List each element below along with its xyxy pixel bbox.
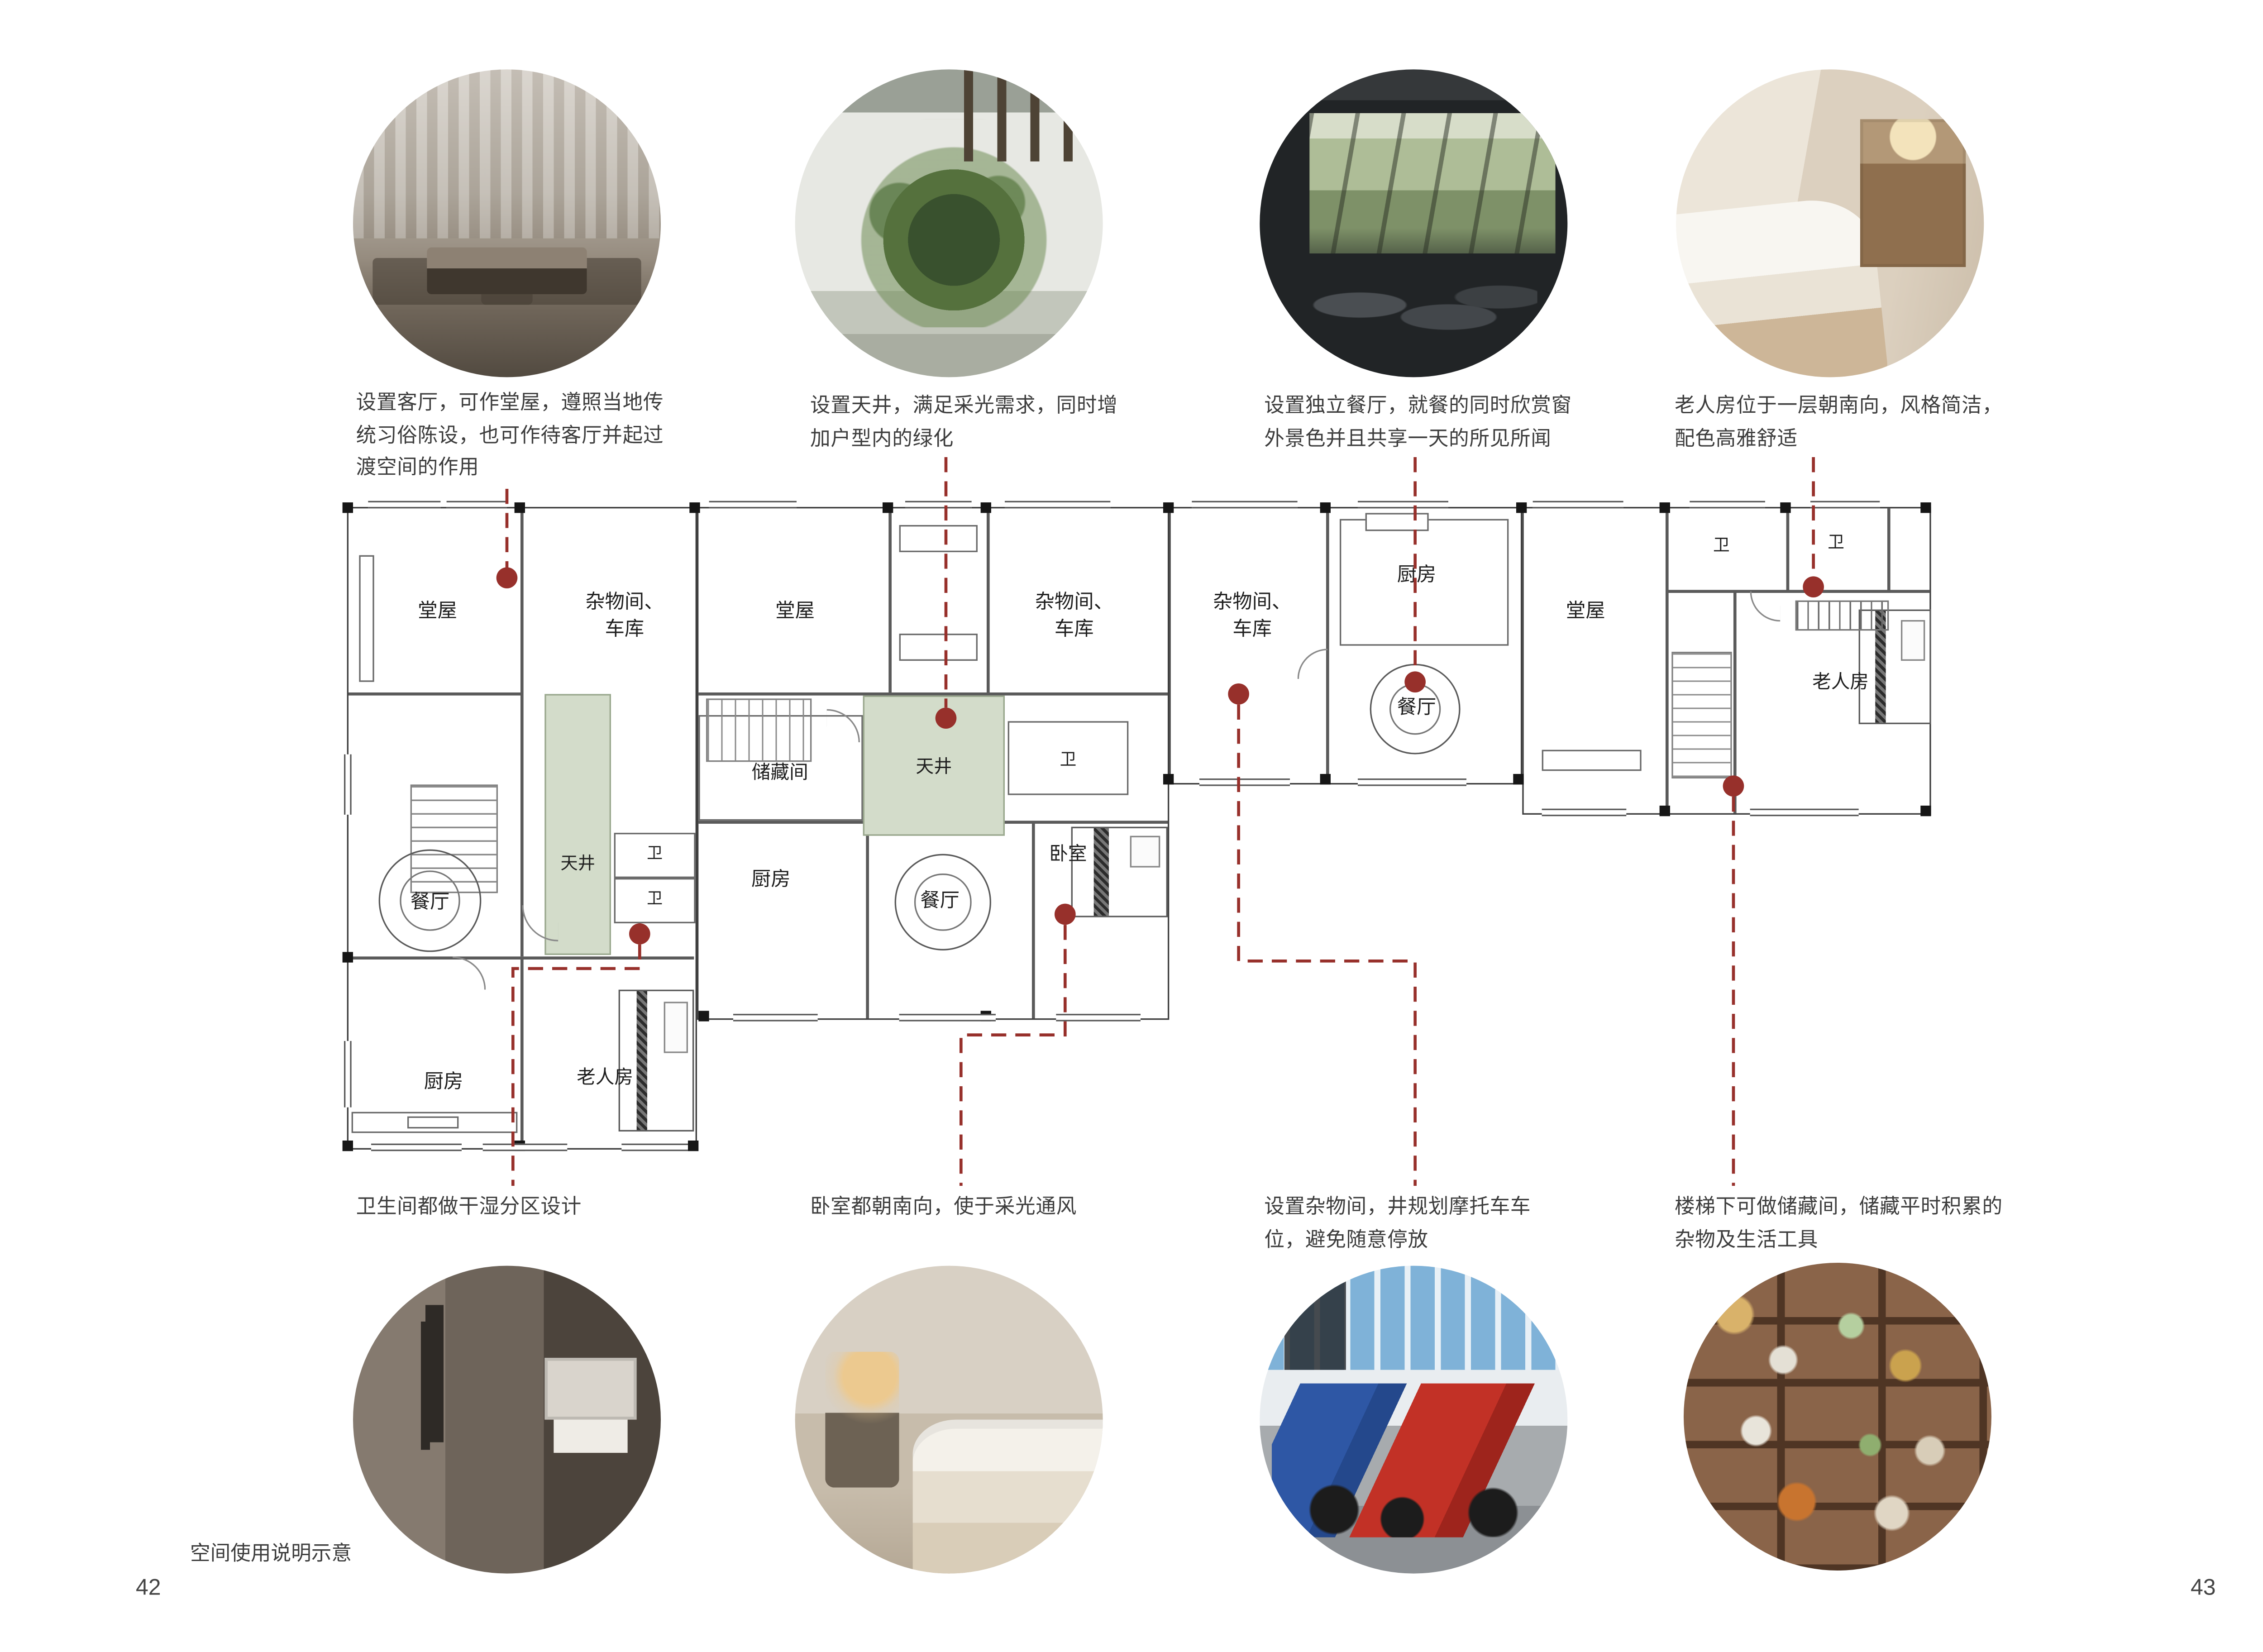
room-label-dining-2: 餐厅 [907,887,973,913]
room-label-elder-4: 老人房 [1798,670,1883,695]
window [344,754,352,815]
column [1320,502,1331,513]
window [905,501,972,509]
window [1056,1014,1141,1022]
window [1358,501,1448,509]
caption-elder-bedroom: 老人房位于一层朝南向，风格简洁，配色高雅舒适 [1675,389,2004,455]
room-label-bath-4b: 卫 [1823,534,1850,554]
dining-room-photo [1260,69,1567,377]
wall [1666,508,1668,813]
window [733,1014,818,1022]
wall [1887,508,1890,591]
room-label-pantry-2: 储藏间 [738,760,822,786]
room-label-hall-1: 堂屋 [395,597,480,624]
room-label-bath-2: 卫 [1008,751,1129,771]
caption-bathroom: 卫生间都做干湿分区设计 [356,1190,643,1223]
caption-courtyard: 设置天井，满足采光需求，同时增加户型内的绿化 [810,389,1136,455]
room-label-kitchen-3: 厨房 [1384,561,1450,587]
column [1660,502,1670,513]
sofa-unit4 [1542,750,1642,771]
window [368,501,440,509]
room-label-bath-1b: 卫 [614,890,696,909]
window [1533,501,1623,509]
window [1750,809,1859,816]
wall [698,692,1168,695]
column [515,502,525,513]
column [1920,806,1931,816]
room-label-storage-garage-2: 杂物间、车库 [1029,588,1119,641]
bedroom-photo [795,1266,1103,1574]
window [621,1144,688,1151]
column [688,1141,698,1151]
column [1660,806,1670,816]
room-label-elder-1: 老人房 [564,1065,646,1090]
elder-bedroom-photo [1676,69,1984,377]
room-label-kitchen-2: 厨房 [738,866,804,892]
page-number-right: 43 [2191,1575,2216,1601]
room-label-courtyard-1: 天井 [555,854,601,878]
column [1780,502,1790,513]
wall [1326,508,1328,783]
window [371,1144,462,1151]
wall [1032,824,1034,1018]
column [883,502,893,513]
caption-living-room: 设置客厅，可作堂屋，遵照当地传统习俗陈设，也可作待客厅并起过渡空间的作用 [356,386,667,484]
window [344,1041,352,1108]
wall [349,692,520,695]
kitchen-sink-unit1 [407,1117,458,1129]
courtyard-photo [795,69,1103,377]
bathroom-photo [353,1266,661,1574]
bed-unit1 [619,990,694,1132]
pantry-shelves-photo [1684,1263,1991,1571]
window [447,501,507,509]
wall [349,956,694,959]
wall [1733,592,1736,813]
kitchen-sink-unit3 [1365,513,1429,531]
window [1005,501,1110,509]
column [698,1011,709,1021]
caption-motorcycle: 设置杂物间，井规划摩托车车位，避免随意停放 [1264,1190,1560,1256]
column [1516,502,1527,513]
desk-unit2-a [899,525,978,552]
wall [1786,508,1789,591]
wall [866,824,868,1018]
window [1358,778,1466,786]
window [1199,778,1290,786]
living-room-photo [353,69,661,377]
wall [1667,590,1929,592]
page: 设置客厅，可作堂屋，遵照当地传统习俗陈设，也可作待客厅并起过渡空间的作用 设置天… [0,0,2263,1651]
column [1920,502,1931,513]
room-label-hall-2: 堂屋 [753,597,837,624]
window [899,1014,996,1022]
room-label-courtyard-2: 天井 [910,754,958,779]
window [709,501,797,509]
caption-bedroom: 卧室都朝南向，使于采光通风 [810,1190,1127,1223]
room-label-storage-garage-3: 杂物间、车库 [1207,588,1298,641]
column [1513,774,1523,784]
wall [520,510,523,957]
room-label-storage-garage-1: 杂物间、车库 [579,588,670,641]
window [1810,501,1880,509]
column [343,1141,353,1151]
window [483,1144,568,1151]
window [1542,809,1627,816]
room-label-bath-4a: 卫 [1708,537,1735,557]
column [1163,774,1174,784]
column [1163,502,1174,513]
room-label-dining-3: 餐厅 [1384,694,1450,720]
room-label-kitchen-1: 厨房 [411,1068,477,1094]
column [689,502,700,513]
page-number-left: 42 [136,1575,161,1601]
column [981,502,991,513]
column [343,502,353,513]
wall [888,508,891,692]
window [1192,501,1297,509]
wardrobe-unit4 [1795,601,1889,631]
wall [987,508,989,692]
column [1320,774,1331,784]
window [1690,501,1765,509]
room-label-dining-1: 餐厅 [397,888,463,915]
footer-note: 空间使用说明示意 [190,1536,352,1566]
desk-unit2-b [899,634,978,661]
wall [520,960,523,1148]
motorcycle-parking-photo [1260,1266,1567,1574]
caption-dining-room: 设置独立餐厅，就餐的同时欣赏窗外景色并且共享一天的所见所闻 [1264,389,1590,455]
room-label-bedroom-2: 卧室 [1038,842,1098,867]
stairs-unit2 [706,698,812,762]
room-label-bath-1a: 卫 [614,845,696,864]
room-label-hall-4: 堂屋 [1543,597,1628,624]
column [343,952,353,962]
bed-unit2 [1071,827,1168,917]
cabinet-unit1 [359,555,374,682]
stairs-unit4 [1671,652,1732,778]
caption-pantry: 楼梯下可做储藏间，储藏平时积累的杂物及生活工具 [1675,1190,2006,1256]
